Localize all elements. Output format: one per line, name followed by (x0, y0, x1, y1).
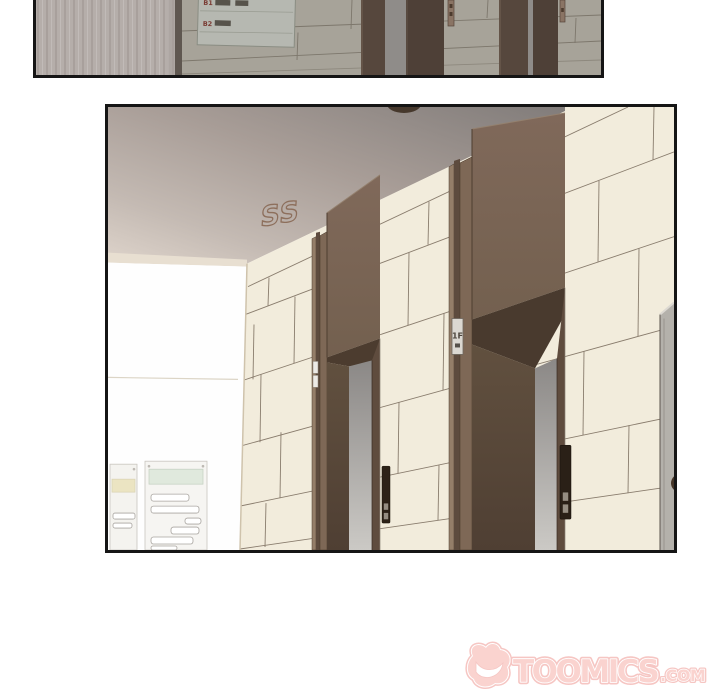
top-panel-art: B1 B2 (36, 0, 601, 75)
right-door-frame (660, 303, 674, 550)
door-opening (327, 362, 349, 550)
latch-plate-icon (313, 375, 318, 387)
main-panel-art: 1F SS (108, 107, 674, 550)
door-plate-label: 1F (452, 331, 463, 340)
door-opening (472, 344, 535, 550)
toomics-logo: TOOMICS TOOMICS .COM .COM (463, 640, 715, 696)
latch-plate-icon (313, 361, 318, 373)
wall-corner-edge (175, 0, 182, 75)
doorway-2: 1F (449, 113, 571, 550)
door-transom (472, 113, 565, 320)
directory-row-2-label: B2 (203, 20, 213, 28)
comic-panel-top: B1 B2 (33, 0, 604, 78)
poster-right (145, 461, 207, 550)
door-frame (372, 338, 380, 550)
toomics-suffix-text: .COM (660, 666, 705, 685)
recess-wall (535, 358, 557, 550)
recess-wall (349, 360, 372, 550)
directory-sign: B1 B2 (197, 0, 296, 47)
toomics-brand-text: TOOMICS (513, 654, 659, 690)
wood-wall (36, 0, 177, 75)
directory-row-1-label: B1 (203, 0, 213, 7)
comic-panel-main: 1F SS (105, 104, 677, 553)
toomics-mascot-icon (468, 644, 510, 686)
poster-left (110, 464, 137, 550)
toomics-watermark: TOOMICS TOOMICS .COM .COM (463, 640, 715, 696)
